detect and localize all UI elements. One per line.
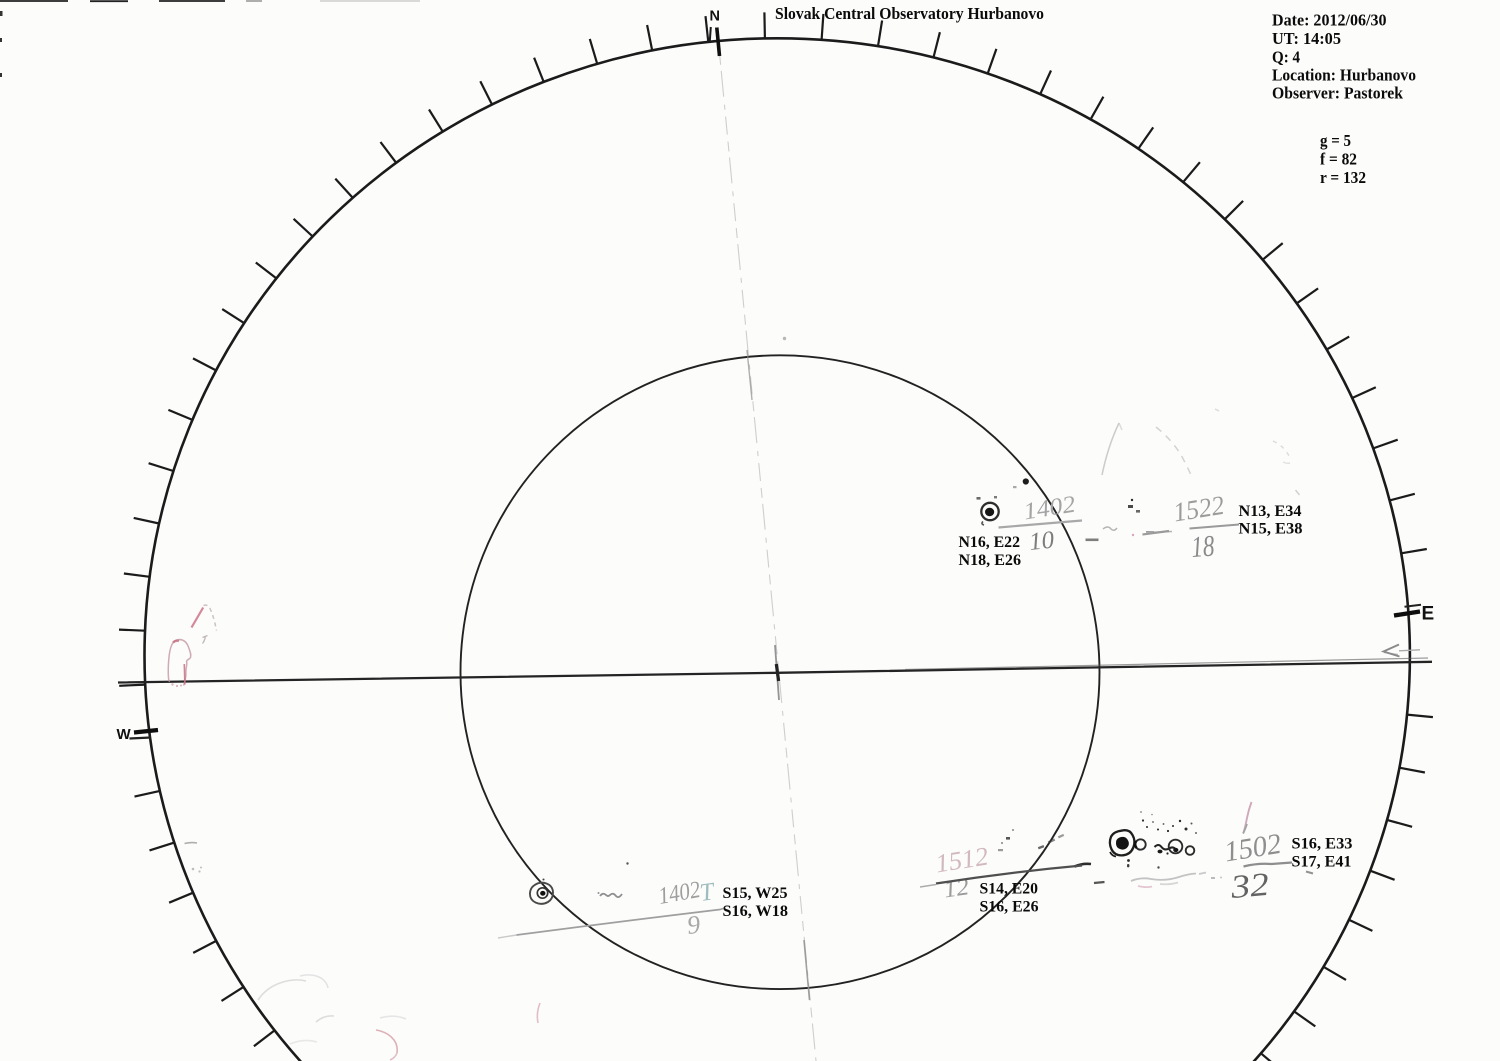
svg-text:Slovak Central Observatory Hur: Slovak Central Observatory Hurbanovo: [775, 4, 1044, 23]
svg-text:g = 5: g = 5: [1320, 131, 1351, 150]
svg-text:Location: Hurbanovo: Location: Hurbanovo: [1272, 66, 1416, 85]
svg-text:10: 10: [1028, 526, 1056, 556]
svg-text:N15, E38: N15, E38: [1239, 520, 1303, 538]
svg-text:Q: 4: Q: 4: [1272, 48, 1300, 67]
svg-text:Observer: Pastorek: Observer: Pastorek: [1272, 84, 1403, 103]
svg-text:Date: 2012/06/30: Date: 2012/06/30: [1272, 11, 1387, 30]
svg-text:N: N: [710, 9, 720, 25]
svg-text:18: 18: [1190, 529, 1215, 564]
svg-text:S16, E26: S16, E26: [980, 898, 1039, 916]
svg-text:S14, E20: S14, E20: [980, 880, 1039, 898]
svg-text:r = 132: r = 132: [1320, 168, 1366, 187]
svg-text:S17, E41: S17, E41: [1292, 853, 1352, 871]
svg-text:S15, W25: S15, W25: [723, 884, 788, 902]
svg-text:N18, E26: N18, E26: [959, 551, 1022, 569]
svg-text:N16, E22: N16, E22: [959, 533, 1021, 551]
svg-text:N13, E34: N13, E34: [1239, 502, 1302, 520]
svg-text:32: 32: [1228, 867, 1270, 906]
svg-text:f = 82: f = 82: [1320, 150, 1357, 169]
svg-text:S16, W18: S16, W18: [723, 902, 789, 920]
svg-text:W: W: [117, 726, 132, 743]
svg-text:S16, E33: S16, E33: [1292, 835, 1353, 853]
svg-text:E: E: [1422, 604, 1435, 625]
svg-text:UT: 14:05: UT: 14:05: [1272, 29, 1341, 48]
